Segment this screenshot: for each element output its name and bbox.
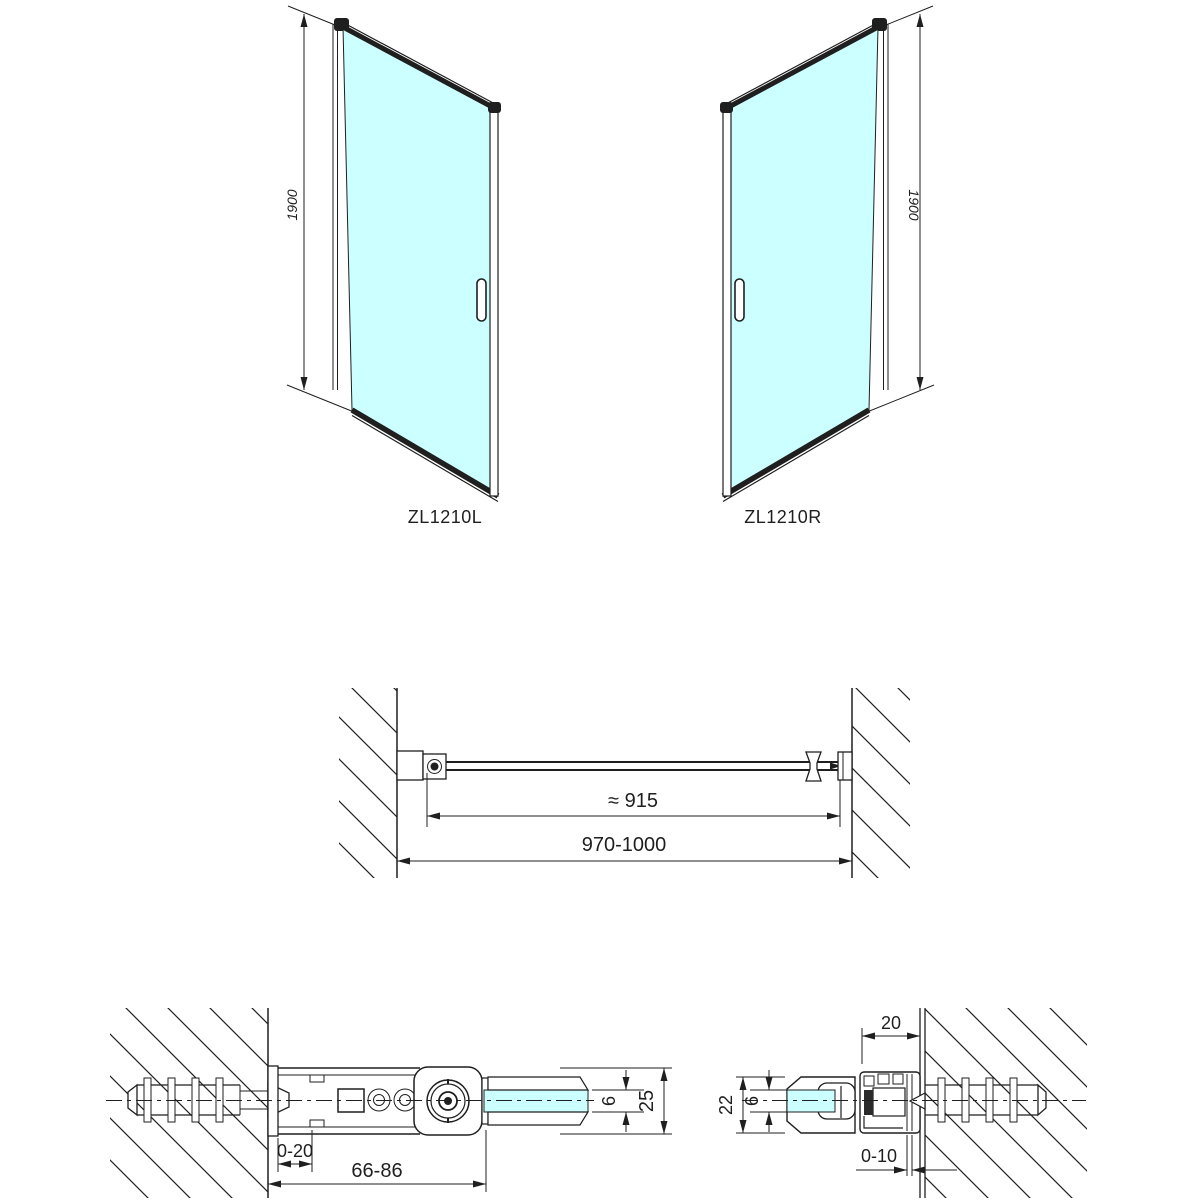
left-door-code: ZL1210L [408, 507, 483, 527]
left-door-height-label: 1900 [284, 189, 300, 220]
plan-view: ≈ 915 970-1000 [339, 688, 910, 878]
left-door-stile [490, 111, 498, 496]
profile-depth-label-right: 22 [716, 1095, 736, 1115]
profile-width-label: 20 [881, 1013, 901, 1033]
plan-right-wall-hatch [852, 688, 910, 878]
right-door-stile [723, 111, 731, 496]
plan-wall-profile [838, 752, 852, 780]
plan-knob [806, 752, 821, 781]
right-door-elevation: 1900 ZL1210R [720, 6, 934, 527]
plan-hinge-pivot [431, 763, 439, 771]
left-door-stile-cap [488, 102, 501, 113]
plan-wall-bracket [397, 751, 423, 780]
plan-left-wall-hatch [339, 688, 397, 878]
hinge-depth-label: 66-86 [351, 1160, 402, 1182]
glass-thickness-label-right: 6 [742, 1096, 762, 1106]
right-door-handle [735, 279, 744, 321]
right-door-code: ZL1210R [744, 507, 822, 527]
right-door-stile-cap [720, 102, 733, 113]
left-door-handle [477, 279, 486, 321]
profile-depth-label: 25 [636, 1090, 658, 1112]
glass-clamp-top-jaw [488, 1077, 588, 1090]
plan-glass-width-label: ≈ 915 [608, 790, 658, 812]
right-door-height-label: 1900 [906, 189, 922, 220]
technical-drawing-page: 1900 ZL1210L 1900 [0, 0, 1200, 1200]
adjustment-label: 0-10 [861, 1146, 897, 1166]
left-door-elevation: 1900 ZL1210L [284, 6, 501, 527]
glass-thickness-label: 6 [599, 1096, 619, 1106]
plan-glass-width-dimension: ≈ 915 [427, 773, 840, 827]
plan-total-width-label: 970-1000 [582, 834, 667, 856]
hinge-wall-detail: 25 6 0-20 66-86 [106, 1008, 672, 1198]
glass-clamp-bottom-jaw [488, 1112, 588, 1125]
wall-mount-profile [860, 1072, 920, 1133]
serrated-adjuster [864, 1090, 873, 1115]
wall-offset-label: 0-20 [277, 1141, 313, 1161]
shower-door-technical-drawing: 1900 ZL1210L 1900 [0, 0, 1200, 1200]
wall-profile-detail: 20 22 6 0-10 [716, 1008, 1087, 1198]
